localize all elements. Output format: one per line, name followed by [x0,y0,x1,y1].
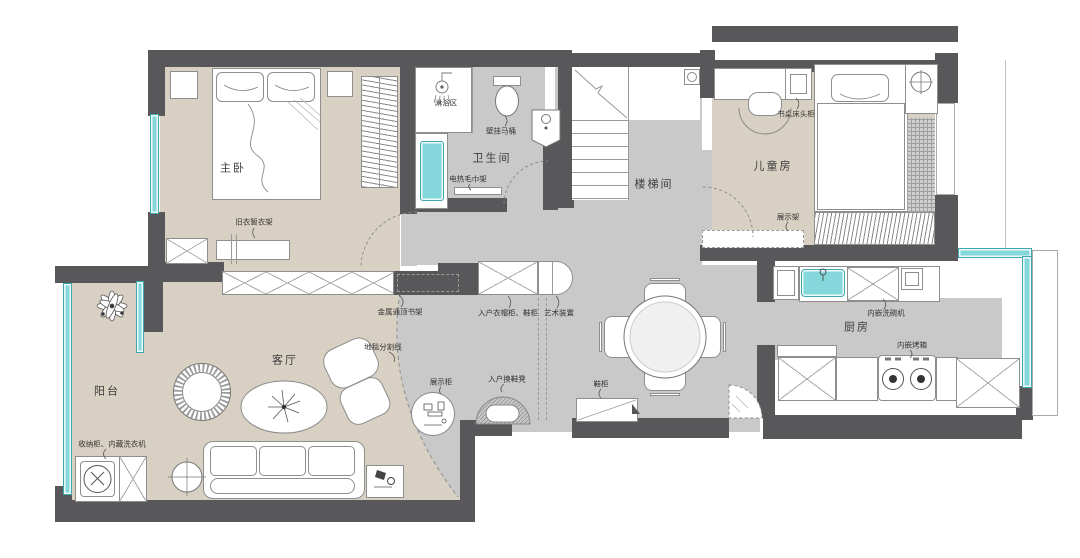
label-desk-nightstand: 书桌床头柜 [777,110,815,118]
rack-pole [236,234,237,264]
room-label-living: 客厅 [272,355,298,366]
wardrobe-rail [379,77,380,187]
floor-plan: 主卧 卫生间 楼梯间 儿童房 客厅 阳台 餐厅 厨房 旧衣暂衣架 淋浴区 壁挂马… [0,0,1080,558]
room-label-dining: 餐厅 [653,333,679,344]
entry-cabinet [478,261,538,295]
wall [144,266,163,332]
pillow [267,72,315,102]
label-entry-bench: 入户换鞋凳 [488,375,526,383]
counter-box-inner [905,272,919,286]
nightstand [327,71,353,97]
sofa-seat [210,478,355,494]
wall [460,420,512,436]
window [958,248,1032,258]
kitchen-console [777,345,837,357]
stair-column [684,69,700,85]
storage-cabinet [119,456,147,502]
stair-edge [628,67,629,200]
wall [763,415,1022,439]
bookshelf [222,271,394,295]
label-dishwasher: 内嵌洗碗机 [867,309,905,317]
art-pill-line [552,262,553,294]
exterior-strip [1032,250,1058,416]
wall [543,120,558,210]
label-carpet-divider: 地毯分割线 [364,343,402,351]
bathtub [420,141,444,201]
room-label-stair: 楼梯间 [635,179,674,190]
wall-outer-band [712,26,958,42]
label-entry-wardrobe: 入户衣帽柜、鞋柜 [478,309,538,317]
label-shoe-cabinet: 鞋柜 [594,380,609,388]
sofa-cushion [259,446,306,476]
counter-cabinet [847,267,899,301]
window [1022,256,1032,388]
sofa-cushion [308,446,355,476]
room-label-balcony: 阳台 [94,386,120,397]
bookshelf-section [397,274,459,292]
chair-back-bar [650,393,680,396]
wall [148,50,572,67]
art-pill [538,261,573,295]
sofa-cushion [210,446,257,476]
wall [148,50,165,116]
kitchen-counter [936,357,958,401]
wall [700,50,715,98]
label-storage-washer: 收纳柜、内藏洗衣机 [78,440,146,448]
kids-rug [907,118,935,212]
kitchen-cabinet [778,357,836,401]
dining-chair [644,283,686,315]
window [150,114,159,214]
kitchen-sink [801,269,845,297]
stair-treads [572,120,629,200]
wall [757,345,775,418]
room-label-bath: 卫生间 [473,153,512,164]
label-oven: 内嵌烤箱 [897,341,927,349]
pillow [831,74,889,102]
label-wall-hung-toilet: 壁挂马桶 [486,127,516,135]
rack-pole [231,234,232,264]
washing-machine-inner [80,461,115,497]
exterior-line [1005,60,1006,248]
label-towel-rack: 电热毛巾架 [449,175,487,183]
kids-bed-mattress [817,103,905,210]
chair-back-bar [723,322,726,352]
kitchen-cabinet [956,358,1020,408]
nightstand [170,71,198,99]
dining-chair [644,359,686,391]
towel-rack [454,187,502,195]
kids-wardrobe [814,212,935,245]
cabinet [166,238,208,264]
stove [878,355,936,401]
toilet-tank [493,76,521,86]
pillow [216,72,264,102]
window [136,281,144,353]
label-display-rack: 展示架 [777,213,800,221]
shoe-cabinet [576,398,638,422]
screen-line [538,298,539,420]
chair-back-bar [599,322,602,352]
room-label-master: 主卧 [220,163,246,174]
bedside-cabinet-inner [790,74,807,94]
window [936,103,955,195]
wall [55,266,148,283]
label-metal-bookshelf: 金属通顶书架 [378,308,423,316]
chair-back-bar [650,278,680,281]
label-shower-zone: 淋浴区 [435,99,458,107]
window [63,283,72,495]
wall [558,53,712,68]
wall [935,53,958,103]
label-clothes-rack: 旧衣暂衣架 [235,218,273,226]
dining-chair [689,316,721,358]
display-rack [702,230,804,248]
lamp-table [905,64,938,114]
wall [58,500,464,522]
room-label-kitchen: 厨房 [844,322,870,333]
dining-chair [604,316,636,358]
fridge-inner [777,270,795,296]
hall-upper-floor [415,205,560,265]
label-display-cabinet: 展示柜 [430,378,453,386]
side-stand [366,465,404,498]
door-gap [401,214,417,266]
stair-landing [572,67,700,120]
kitchen-counter [836,357,878,401]
label-art-installation: 艺术装置 [544,309,574,317]
glass-partition [472,67,473,133]
room-label-kids: 儿童房 [754,161,793,172]
clothes-bench [216,240,290,260]
